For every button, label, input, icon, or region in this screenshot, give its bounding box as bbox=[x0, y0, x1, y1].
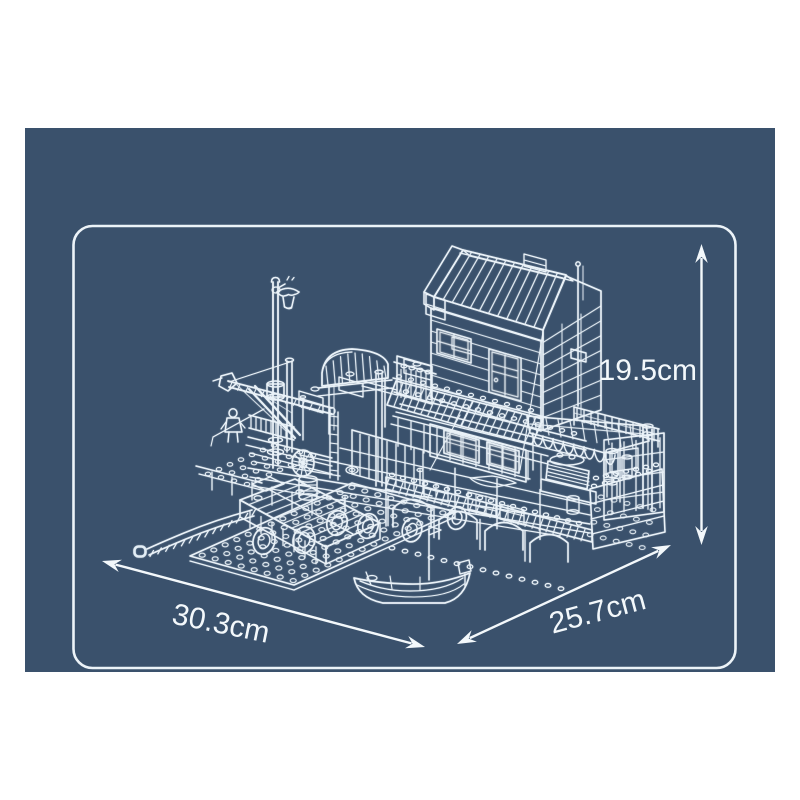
svg-text:19.5cm: 19.5cm bbox=[599, 354, 697, 387]
